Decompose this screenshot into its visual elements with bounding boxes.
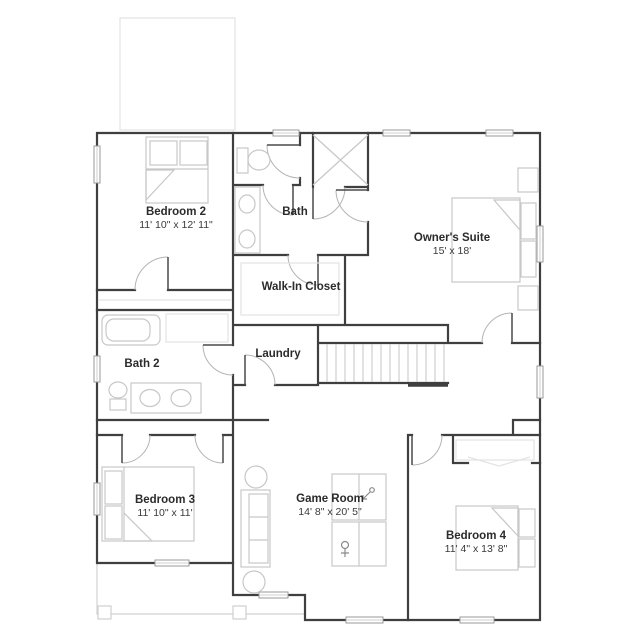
room-labels: Bedroom 2 11' 10" x 12' 11" Bath Owner's…: [124, 206, 507, 555]
dims-owners-suite: 15' x 18': [433, 245, 471, 257]
label-bedroom2: Bedroom 2: [146, 206, 206, 218]
dart-icon: [363, 488, 374, 499]
label-walk-in-closet: Walk-In Closet: [262, 281, 341, 293]
bedroom4-closet-shelf: [456, 440, 534, 460]
dims-game-room: 14' 8" x 20' 5": [298, 506, 362, 518]
player-icon: [341, 542, 349, 558]
floor-plan-page: Bedroom 2 11' 10" x 12' 11" Bath Owner's…: [0, 0, 640, 640]
porch: [97, 563, 304, 619]
label-game-room: Game Room: [296, 493, 364, 505]
shower: [313, 135, 368, 185]
vanity-bath: [235, 187, 260, 253]
bifold-closet-doors: [468, 457, 530, 466]
label-bath: Bath: [282, 206, 308, 218]
toilet-bath: [237, 148, 270, 173]
label-bedroom4: Bedroom 4: [446, 530, 507, 542]
label-bath2: Bath 2: [124, 358, 159, 370]
side-table: [243, 571, 265, 593]
label-bedroom3: Bedroom 3: [135, 494, 195, 506]
staircase: [327, 344, 448, 385]
toilet-bath2: [109, 382, 127, 410]
bed-bedroom2: [146, 137, 208, 203]
vanity-bath2: [131, 383, 201, 413]
label-owners-suite: Owner's Suite: [414, 232, 490, 244]
nightstand: [518, 168, 538, 192]
porch-post: [233, 606, 246, 619]
linen-closet: [166, 314, 228, 342]
porch-post: [98, 606, 111, 619]
game-tables: [332, 474, 386, 566]
tub-bath2: [102, 315, 160, 345]
nightstand: [518, 286, 538, 310]
dims-bedroom3: 11' 10" x 11': [137, 507, 192, 519]
sofa: [241, 466, 270, 593]
roof-outline: [120, 18, 235, 130]
label-laundry: Laundry: [255, 348, 301, 360]
floor-plan-drawing: Bedroom 2 11' 10" x 12' 11" Bath Owner's…: [0, 0, 640, 640]
side-table: [245, 466, 267, 488]
dims-bedroom4: 11' 4" x 13' 8": [445, 543, 508, 555]
doors: [122, 145, 530, 466]
dims-bedroom2: 11' 10" x 12' 11": [139, 219, 213, 231]
